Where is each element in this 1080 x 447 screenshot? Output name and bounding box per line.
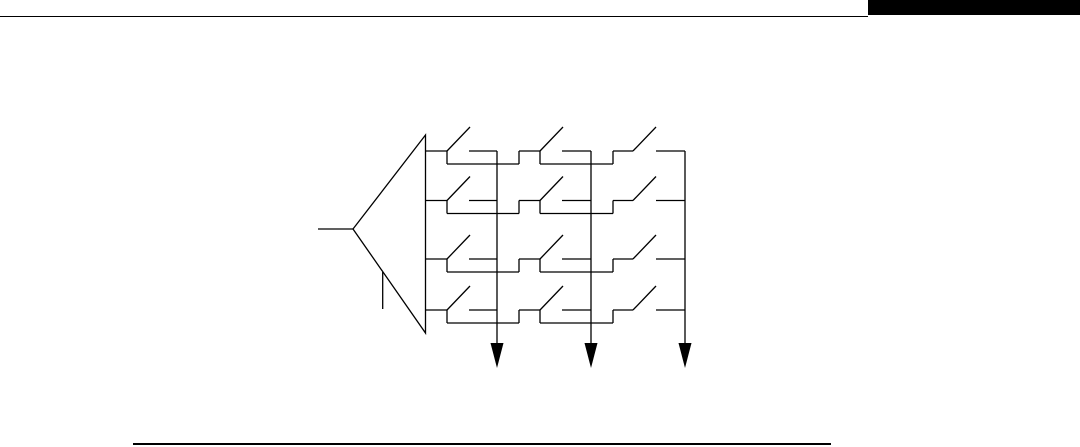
switch-blade xyxy=(633,177,656,201)
switch-cell-r1c2 xyxy=(540,127,633,164)
switch-cell-r3c2 xyxy=(540,235,633,272)
document-page xyxy=(0,0,1080,447)
switch-row-4 xyxy=(426,286,686,323)
switch-cell-r2c1 xyxy=(447,177,540,214)
switch-row-1 xyxy=(426,127,686,164)
switch-cell-r3c3 xyxy=(633,235,685,259)
output-arrowhead xyxy=(491,343,504,368)
switch-blade xyxy=(633,127,656,151)
switch-row-3 xyxy=(426,235,686,272)
switch-blade xyxy=(447,286,470,310)
switch-blade xyxy=(540,127,563,151)
switch-cell-r4c3 xyxy=(633,286,685,310)
switch-cell-r2c2 xyxy=(540,177,633,214)
crossbar-switch-matrix-diagram xyxy=(0,0,1080,447)
switch-cell-r3c1 xyxy=(447,235,540,272)
output-arrowhead xyxy=(679,343,692,368)
amplifier-triangle xyxy=(353,135,426,333)
switch-cell-r2c3 xyxy=(633,177,685,201)
footer-rule xyxy=(133,443,831,445)
switch-row-2 xyxy=(426,177,686,214)
switch-blade xyxy=(447,235,470,259)
switch-blade xyxy=(633,286,656,310)
output-arrowhead xyxy=(585,343,598,368)
switch-blade xyxy=(540,235,563,259)
switch-cell-r1c1 xyxy=(447,127,540,164)
switch-blade xyxy=(633,235,656,259)
switch-cell-r4c2 xyxy=(540,286,633,323)
switch-blade xyxy=(447,127,470,151)
switch-blade xyxy=(447,177,470,201)
switch-cell-r1c3 xyxy=(633,127,685,151)
switch-blade xyxy=(540,177,563,201)
switch-cell-r4c1 xyxy=(447,286,540,323)
switch-blade xyxy=(540,286,563,310)
amplifier-symbol xyxy=(318,135,426,333)
